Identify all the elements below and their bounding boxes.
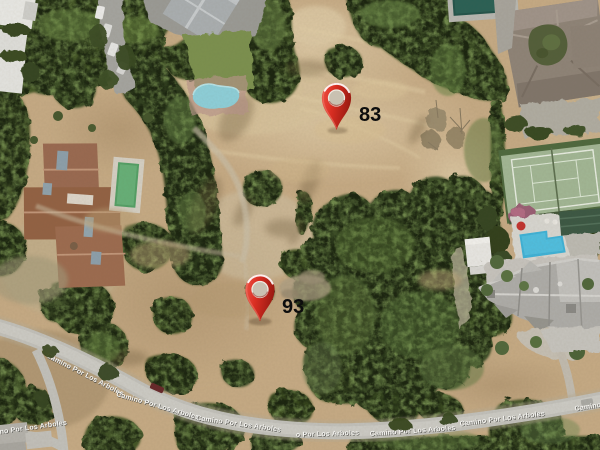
svg-text:93: 93 bbox=[282, 296, 304, 318]
svg-text:83: 83 bbox=[359, 104, 381, 126]
